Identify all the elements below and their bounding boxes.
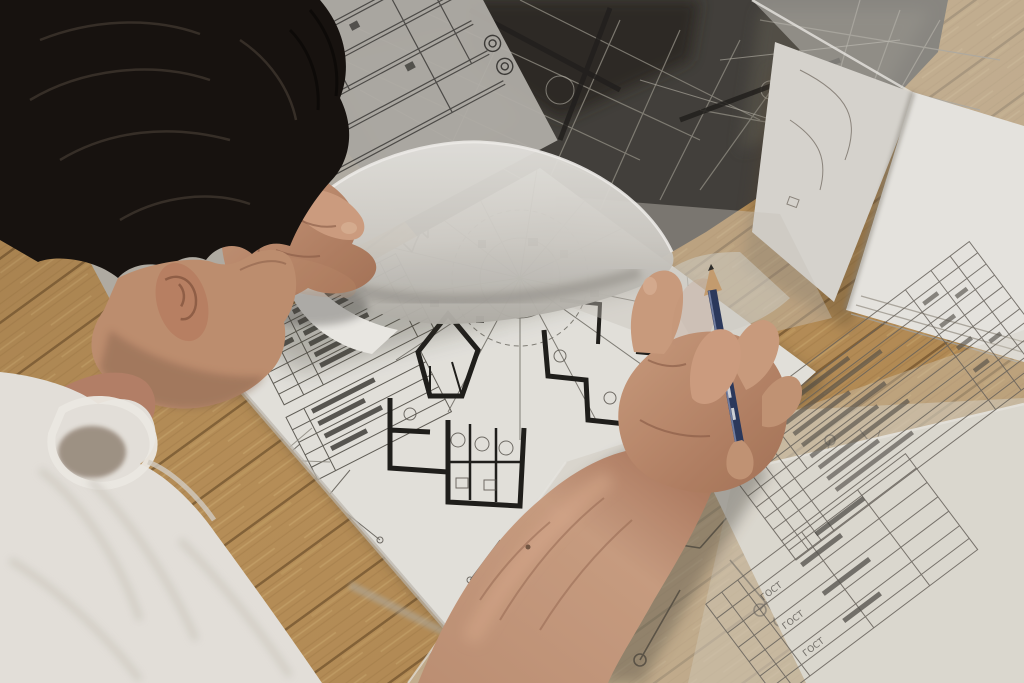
vignette (0, 0, 1024, 683)
photo-architect-blueprints: ГОСТ ГОСТ ГОСТ (0, 0, 1024, 683)
